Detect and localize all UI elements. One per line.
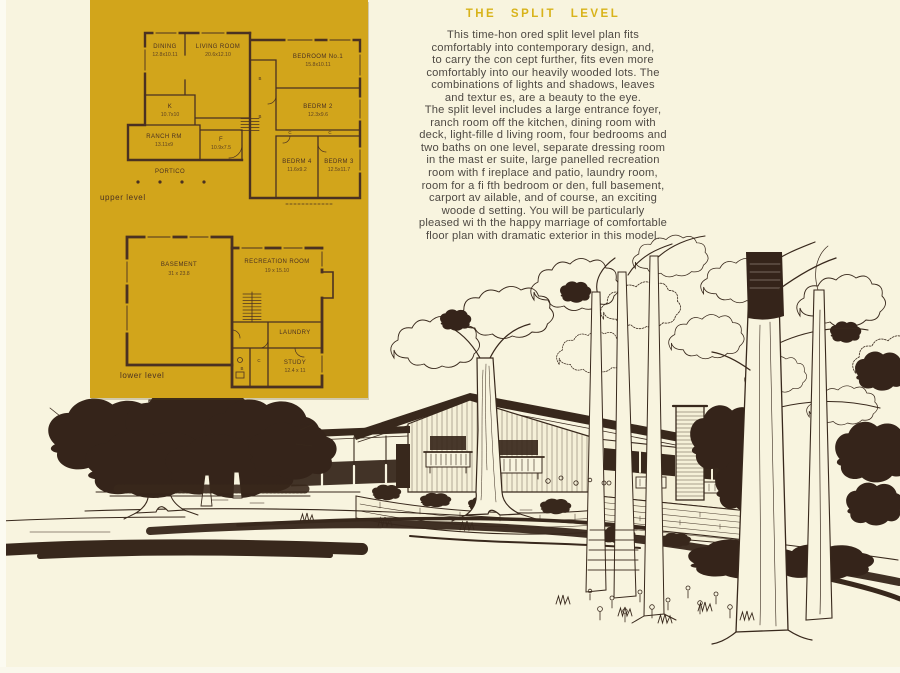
body-line: to carry the con cept further, fits even… xyxy=(385,54,701,67)
room-label-ranch: RANCH RM xyxy=(146,134,182,140)
closet-label: C xyxy=(288,130,291,135)
left-tree-group xyxy=(48,387,336,519)
room-dims-study: 12.4 x 11 xyxy=(285,368,306,374)
upper-level-caption: upper level xyxy=(100,193,146,202)
room-dims-basement: 31 x 23.8 xyxy=(168,271,189,277)
scan-edge-bottom xyxy=(0,667,900,673)
room-label-bedroom1: BEDROOM No.1 xyxy=(293,54,343,60)
closet-label: C xyxy=(328,130,331,135)
bath-label: B xyxy=(241,366,244,371)
tree-trunk xyxy=(586,292,606,592)
room-label-kitchen: K xyxy=(168,104,172,110)
tree-trunk xyxy=(614,272,636,598)
body-line: floor plan with dramatic exterior in thi… xyxy=(385,230,701,243)
bath-label: B xyxy=(259,114,262,119)
body-line: in the mast er suite, large panelled rec… xyxy=(385,154,701,167)
room-dims-bedrm4: 11.6x9.2 xyxy=(287,167,307,173)
room-dims-kitchen: 10.7x10 xyxy=(161,112,180,118)
floor-plan-panel: DINING 12.8x10.11 LIVING ROOM 20.6x12.10… xyxy=(90,0,368,398)
room-dims-ranch: 13.11x9 xyxy=(155,142,173,148)
article: THE SPLIT LEVEL This time-hon ored split… xyxy=(385,8,701,242)
body-line: room for a fi fth bedroom or den, full b… xyxy=(385,180,701,193)
room-dims-bedrm2: 12.3x9.6 xyxy=(308,112,328,118)
scan-edge-left xyxy=(0,0,6,673)
room-label-portico: PORTICO xyxy=(155,169,185,175)
body-line: and textur es, are a beauty to the eye. xyxy=(385,92,701,105)
room-label-bedrm4: BEDRM 4 xyxy=(282,159,312,165)
tree-trunk xyxy=(644,256,664,616)
room-label-living: LIVING ROOM xyxy=(196,44,240,50)
body-line: deck, light-fille d living room, four be… xyxy=(385,129,701,142)
body-line: carport av ailable, and of course, an ex… xyxy=(385,192,701,205)
body-line: ranch room off the kitchen, dining room … xyxy=(385,117,701,130)
floor-plan-drawing: DINING 12.8x10.11 LIVING ROOM 20.6x12.10… xyxy=(90,0,368,398)
body-line: combinations of lights and shadows, leav… xyxy=(385,79,701,92)
lower-level-caption: lower level xyxy=(120,371,164,380)
body-line: pleased wi th the happy marriage of comf… xyxy=(385,217,701,230)
body-line: The split level includes a large entranc… xyxy=(385,104,701,117)
room-dims-recreation: 19 x 15.10 xyxy=(265,268,289,274)
room-dims-dining: 12.8x10.11 xyxy=(152,52,177,58)
room-label-recreation: RECREATION ROOM xyxy=(244,259,309,265)
room-label-foyer: F xyxy=(219,137,223,143)
room-dims-foyer: 10.9x7.5 xyxy=(211,145,231,151)
room-label-study: STUDY xyxy=(284,360,306,366)
body-line: woode d setting. You will be particularl… xyxy=(385,205,701,218)
closet-label: C xyxy=(257,358,260,363)
body-line: two baths on one level, separate dressin… xyxy=(385,142,701,155)
body-line: comfortably into our heavily wooded lots… xyxy=(385,67,701,80)
brochure-page: DINING 12.8x10.11 LIVING ROOM 20.6x12.10… xyxy=(0,0,900,673)
room-label-bedrm3: BEDRM 3 xyxy=(324,159,354,165)
lower-level-labels: BASEMENT 31 x 23.8 RECREATION ROOM 19 x … xyxy=(120,259,311,380)
room-dims-bedrm3: 12.5x11.7 xyxy=(328,167,351,173)
room-label-basement: BASEMENT xyxy=(161,262,197,268)
upper-level-labels: DINING 12.8x10.11 LIVING ROOM 20.6x12.10… xyxy=(100,44,354,202)
tree-trunk xyxy=(806,290,832,620)
page-title: THE SPLIT LEVEL xyxy=(385,8,701,20)
body-line: comfortably into contemporary design, an… xyxy=(385,42,701,55)
gable-wall xyxy=(408,380,598,492)
body-line: This time-hon ored split level plan fits xyxy=(385,29,701,42)
room-label-bedrm2: BEDRM 2 xyxy=(303,104,333,110)
body-line: room with f ireplace and patio, laundry … xyxy=(385,167,701,180)
bath-label: B xyxy=(259,76,262,81)
room-label-laundry: LAUNDRY xyxy=(279,330,310,336)
room-dims-living: 20.6x12.10 xyxy=(205,52,231,58)
room-label-dining: DINING xyxy=(153,44,176,50)
room-dims-bedroom1: 15.8x10.11 xyxy=(305,62,330,68)
